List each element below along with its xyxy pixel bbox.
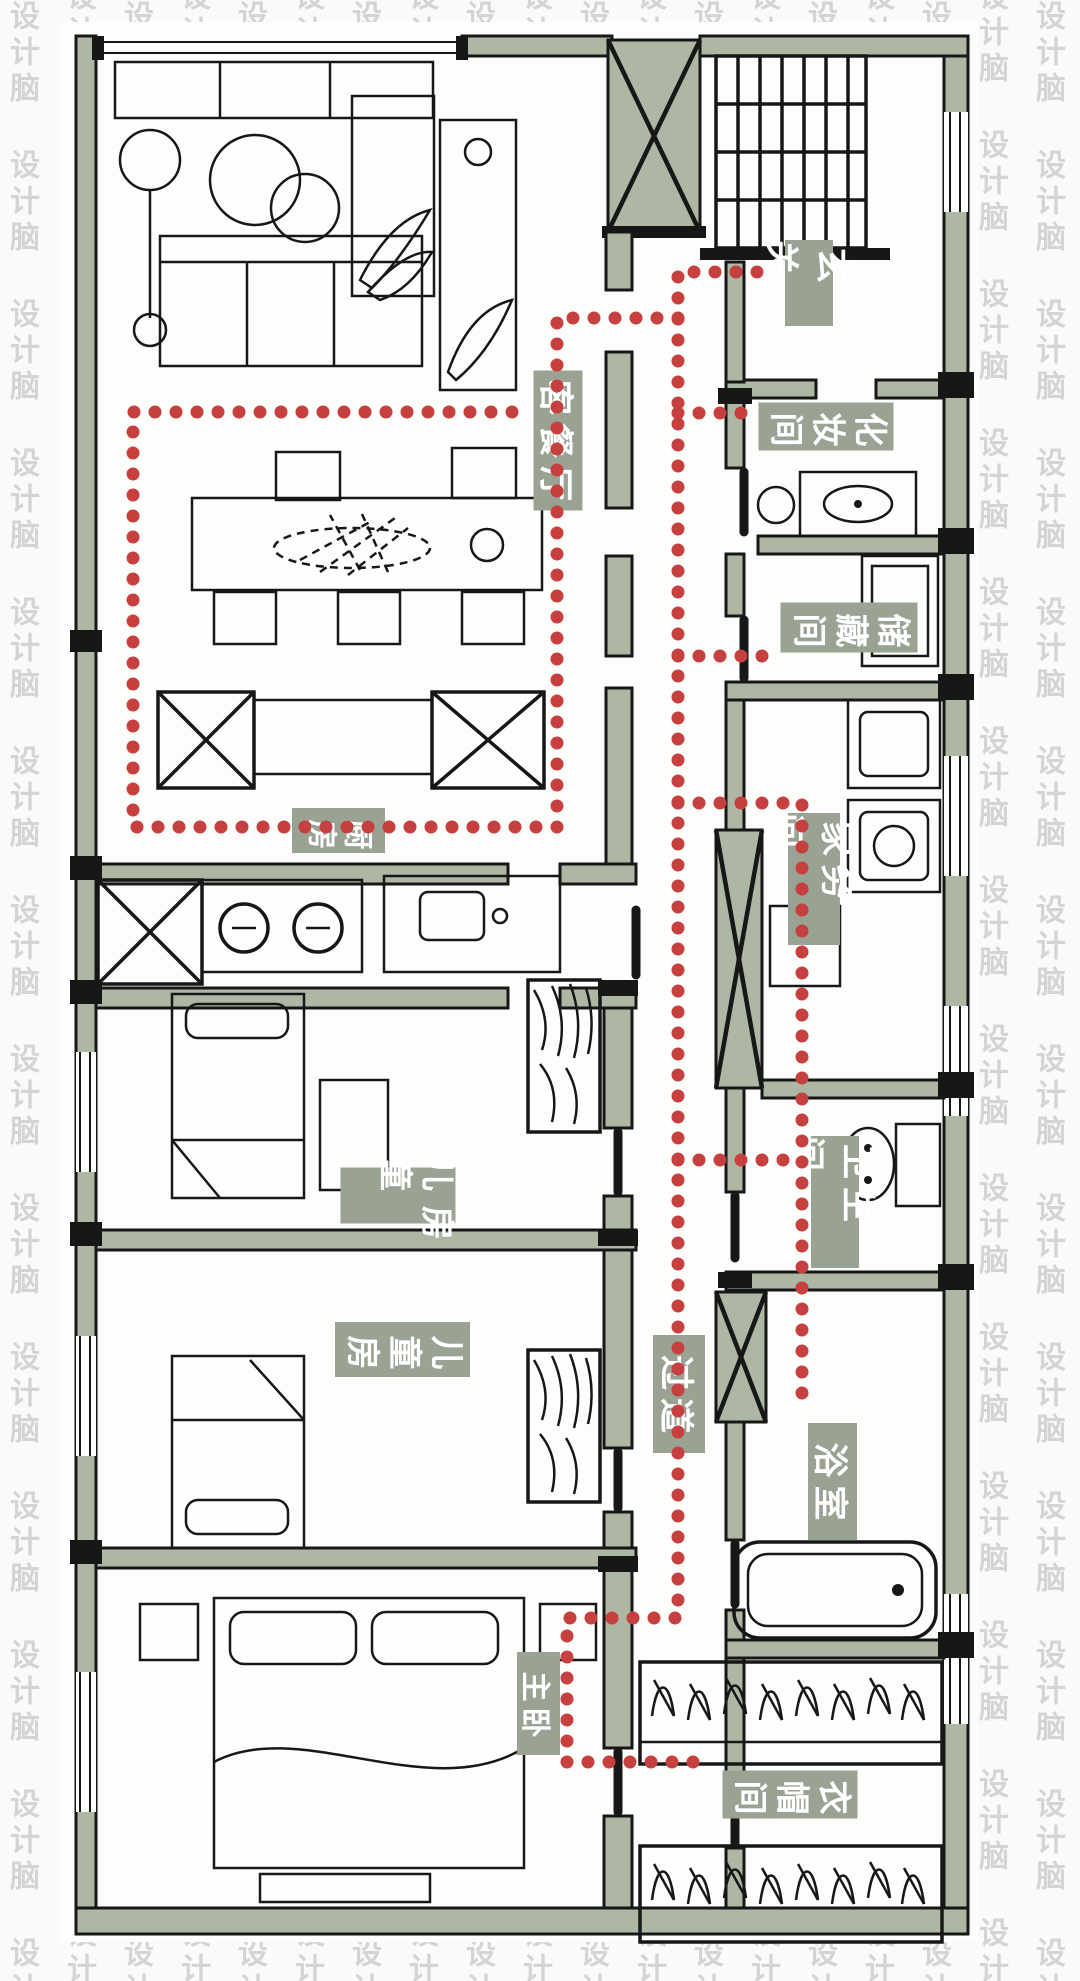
circulation-path-svg: [0, 0, 1080, 1981]
circulation-dotted-path: [133, 272, 802, 1762]
floor-plan-page: 设计脑 设计脑 设计脑 设计脑 设计脑 设计脑 设计脑 设计脑 设计脑 设计脑 …: [0, 0, 1080, 1981]
